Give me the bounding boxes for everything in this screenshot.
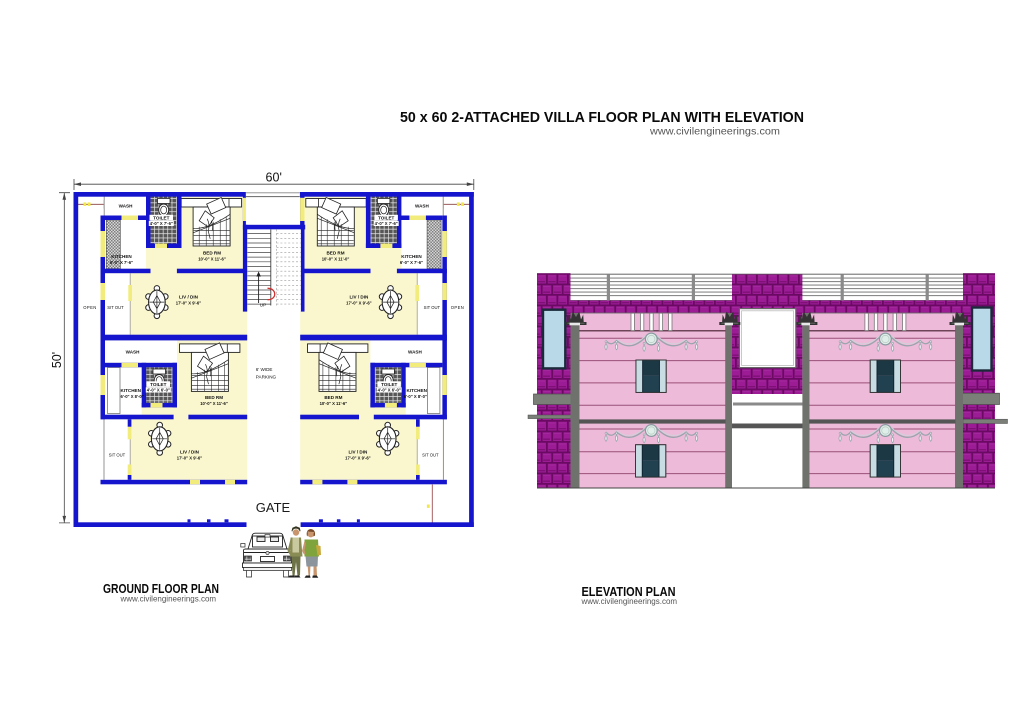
svg-text:17'-0" X 9'-6": 17'-0" X 9'-6" [176,301,202,306]
svg-text:BED RM: BED RM [203,251,221,256]
svg-text:50': 50' [50,352,64,368]
svg-text:OPEN: OPEN [451,305,464,310]
svg-text:TOILET: TOILET [150,382,166,387]
svg-text:4'-0" X 6'-0": 4'-0" X 6'-0" [378,388,401,393]
svg-text:17'-0" X 9'-6": 17'-0" X 9'-6" [346,301,372,306]
svg-text:6'-0" X 7'-6": 6'-0" X 7'-6" [400,260,423,265]
svg-text:4'-0" X 6'-0": 4'-0" X 6'-0" [147,388,170,393]
svg-text:6'-0" X 8'-0": 6'-0" X 8'-0" [404,394,427,399]
svg-text:BED RM: BED RM [326,251,344,256]
svg-text:10'-0" X 11'-6": 10'-0" X 11'-6" [198,257,226,262]
svg-text:KITCHEN: KITCHEN [121,388,142,393]
svg-text:4'-0" X 7'-6": 4'-0" X 7'-6" [150,221,173,226]
svg-text:WASH: WASH [408,350,422,355]
svg-text:KITCHEN: KITCHEN [406,388,427,393]
svg-text:BED RM: BED RM [205,395,223,400]
svg-text:10'-0" X 11'-6": 10'-0" X 11'-6" [320,401,348,406]
svg-text:LIV / DIN: LIV / DIN [348,450,368,455]
svg-text:BED RM: BED RM [324,395,342,400]
svg-text:6'-0" X 8'-0": 6'-0" X 8'-0" [121,394,144,399]
svg-text:60': 60' [266,171,282,185]
svg-text:SIT OUT: SIT OUT [422,453,439,458]
svg-text:TOILET: TOILET [381,382,397,387]
svg-text:10'-0" X 11'-0": 10'-0" X 11'-0" [322,257,350,262]
svg-text:GATE: GATE [256,500,291,515]
svg-text:OPEN: OPEN [83,305,96,310]
svg-text:SIT OUT: SIT OUT [424,305,441,310]
svg-text:www.civilengineerings.com: www.civilengineerings.com [581,597,678,606]
svg-text:SIT OUT: SIT OUT [109,453,126,458]
svg-text:SIT OUT: SIT OUT [107,305,124,310]
svg-text:www.civilengineerings.com: www.civilengineerings.com [120,595,217,604]
svg-text:TOILET: TOILET [153,216,169,221]
svg-text:www.civilengineerings.com: www.civilengineerings.com [649,126,780,138]
svg-text:17'-0" X 9'-6": 17'-0" X 9'-6" [177,456,203,461]
svg-text:4'-0" X 7'-6": 4'-0" X 7'-6" [375,221,398,226]
svg-text:LIV / DIN: LIV / DIN [349,295,369,300]
svg-text:UP: UP [260,303,266,308]
svg-text:50 x 60 2-ATTACHED VILLA FLOOR: 50 x 60 2-ATTACHED VILLA FLOOR PLAN WITH… [400,110,804,126]
svg-text:TOILET: TOILET [378,216,394,221]
svg-text:10'-0" X 11'-6": 10'-0" X 11'-6" [200,401,228,406]
svg-text:LIV / DIN: LIV / DIN [180,450,200,455]
svg-text:KITCHEN: KITCHEN [401,254,422,259]
svg-text:WASH: WASH [119,204,133,209]
svg-text:6'-0" X 7'-6": 6'-0" X 7'-6" [110,260,133,265]
svg-text:KITCHEN: KITCHEN [111,254,132,259]
svg-text:LIV / DIN: LIV / DIN [179,295,199,300]
svg-text:WASH: WASH [415,204,429,209]
svg-text:WASH: WASH [126,350,140,355]
svg-text:17'-0" X 9'-6": 17'-0" X 9'-6" [345,456,371,461]
